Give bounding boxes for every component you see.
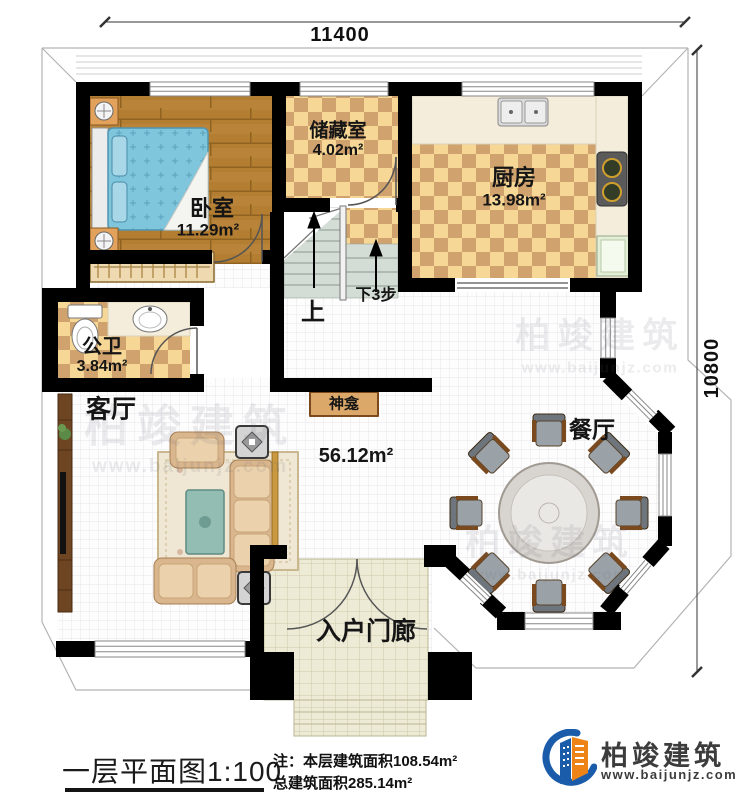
living-window bbox=[95, 641, 245, 657]
bedroom-area: 11.29m² bbox=[177, 222, 239, 239]
bathroom-area: 3.84m² bbox=[77, 359, 128, 375]
storage-area: 4.02m² bbox=[313, 143, 364, 159]
dining-chair bbox=[616, 496, 648, 530]
dining-chair bbox=[532, 580, 566, 612]
porch-label: 入户门廊 bbox=[316, 620, 416, 645]
bathroom-label: 公卫 bbox=[82, 337, 122, 357]
half-wall bbox=[272, 452, 278, 552]
dining-set bbox=[450, 414, 648, 612]
bathroom-sink bbox=[133, 306, 167, 332]
stove bbox=[597, 152, 627, 206]
dining-chair bbox=[450, 496, 482, 530]
staircase bbox=[284, 206, 398, 300]
bedroom-label: 卧室 bbox=[190, 198, 234, 220]
dimension-top: 11400 bbox=[310, 25, 370, 45]
stairs-down-label: 下3步 bbox=[356, 288, 397, 304]
living-label: 客厅 bbox=[86, 398, 136, 423]
floor-plan-page: 柏竣建筑 www.baijunjz.com 柏竣建筑 www.baijunjz.… bbox=[0, 0, 750, 801]
fridge bbox=[597, 236, 629, 276]
kitchen-area: 13.98m² bbox=[482, 192, 545, 209]
kitchen-sink bbox=[498, 98, 548, 126]
tv bbox=[60, 472, 66, 554]
bay-window-right bbox=[659, 454, 671, 516]
kitchen-sliding-door bbox=[457, 283, 568, 288]
bay-window-bottom bbox=[525, 613, 593, 629]
porch-steps bbox=[294, 700, 426, 736]
note-line-2: 总建筑面积285.14m² bbox=[273, 772, 412, 793]
dining-chair bbox=[532, 414, 566, 446]
side-table-top bbox=[236, 426, 268, 458]
dining-label: 餐厅 bbox=[569, 419, 615, 442]
dimension-right: 10800 bbox=[702, 338, 722, 399]
shrine-label: 神龛 bbox=[329, 397, 359, 412]
bay-window-upper bbox=[601, 318, 615, 358]
kitchen-window bbox=[462, 82, 594, 96]
plan-title: 一层平面图1:100 bbox=[62, 750, 282, 790]
storage-window bbox=[300, 82, 388, 96]
kitchen-label: 厨房 bbox=[492, 167, 536, 189]
tv-cabinet bbox=[58, 394, 72, 612]
title-underline bbox=[65, 788, 264, 792]
nightstand-top bbox=[90, 98, 118, 125]
note-line-1: 注：本层建筑面积108.54m² bbox=[273, 750, 457, 771]
stairs-up-label: 上 bbox=[301, 301, 325, 325]
storage-label: 储藏室 bbox=[309, 122, 366, 141]
company-logo-url: www.baijunjz.com bbox=[601, 767, 737, 782]
bedroom-window bbox=[150, 82, 250, 96]
company-logo-icon bbox=[541, 729, 597, 791]
living-dining-area: 56.12m² bbox=[319, 446, 394, 466]
